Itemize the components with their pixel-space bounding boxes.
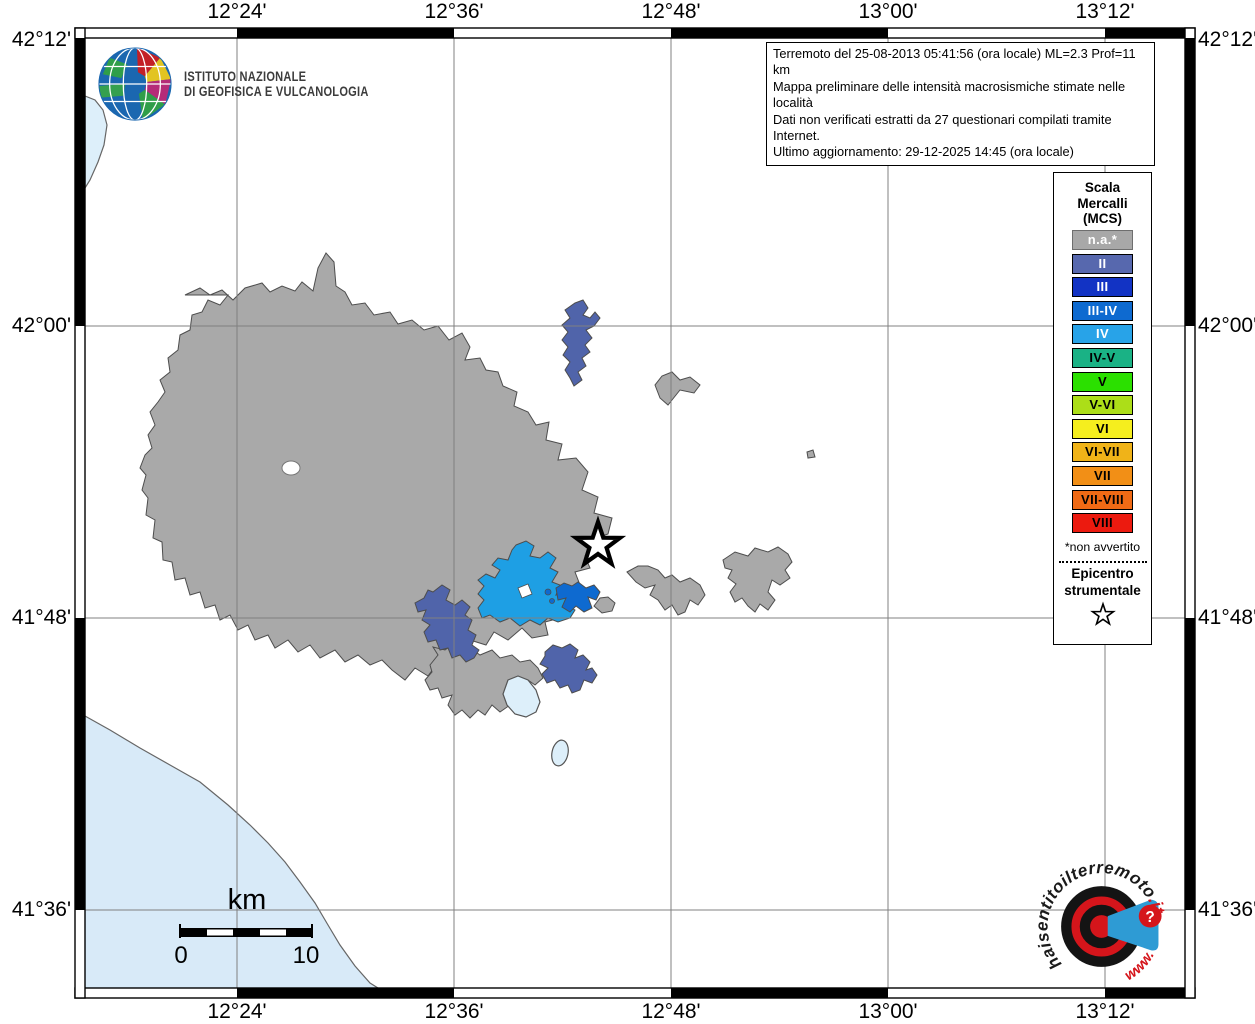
info-line-event: Terremoto del 25-08-2013 05:41:56 (ora l… <box>773 46 1148 79</box>
mercalli-legend: Scala Mercalli (MCS) n.a.* II III III-IV… <box>1053 172 1152 645</box>
axis-label-right: 42°00' <box>1198 314 1255 338</box>
legend-chip-iii: III <box>1072 277 1133 297</box>
ingv-logo: ISTITUTO NAZIONALE DI GEOFISICA E VULCAN… <box>96 45 409 123</box>
legend-divider <box>1059 561 1147 563</box>
info-line-data: Dati non verificati estratti da 27 quest… <box>773 112 1148 145</box>
legend-footnote: *non avvertito <box>1054 540 1151 554</box>
scalebar-start: 0 <box>174 942 187 970</box>
legend-title-line3: (MCS) <box>1054 211 1151 227</box>
legend-chip-iv-v: IV-V <box>1072 348 1133 368</box>
legend-title-line1: Scala <box>1054 180 1151 196</box>
axis-label-bottom: 13°12' <box>1075 1000 1134 1024</box>
legend-chip-iii-iv: III-IV <box>1072 301 1133 321</box>
municipality-intensity-ii <box>540 644 597 693</box>
earthquake-info-box: Terremoto del 25-08-2013 05:41:56 (ora l… <box>766 42 1155 166</box>
lake-martignano <box>282 461 300 475</box>
axis-label-top: 12°36' <box>424 0 483 24</box>
axis-label-top: 13°00' <box>858 0 917 24</box>
legend-chip-v-vi: V-VI <box>1072 395 1133 415</box>
municipality-intensity-iii-iv <box>545 589 551 595</box>
legend-chip-vi: VI <box>1072 419 1133 439</box>
info-line-updated: Ultimo aggiornamento: 29-12-2025 14:45 (… <box>773 144 1148 160</box>
ingv-globe-icon <box>96 45 174 123</box>
axis-label-top: 12°48' <box>641 0 700 24</box>
municipality-na <box>723 547 792 612</box>
legend-chip-vii-viii: VII-VIII <box>1072 490 1133 510</box>
municipality-na <box>627 566 705 615</box>
axis-label-top: 12°24' <box>207 0 266 24</box>
axis-label-top: 13°12' <box>1075 0 1134 24</box>
legend-epicenter-line2: strumentale <box>1054 583 1151 600</box>
municipality-intensity-iii-iv <box>550 599 555 604</box>
haisentitoilterremoto-logo: ? haisentitoilterremoto.it www. <box>1029 854 1174 999</box>
axis-label-bottom: 12°36' <box>424 1000 483 1024</box>
lake-nemi <box>549 739 570 768</box>
scalebar-end: 10 <box>293 942 320 970</box>
scalebar-unit: km <box>228 884 267 917</box>
legend-chip-vii: VII <box>1072 466 1133 486</box>
axis-label-bottom: 13°00' <box>858 1000 917 1024</box>
ingv-name-line2: DI GEOFISICA E VULCANOLOGIA <box>184 84 369 100</box>
axis-label-left: 42°12' <box>1 28 71 52</box>
municipality-intensity-iii-iv <box>556 582 600 612</box>
sea-area <box>85 716 378 988</box>
map-screenshot: 12°24' 12°36' 12°48' 13°00' 13°12' 12°24… <box>0 0 1255 1024</box>
legend-chip-ii: II <box>1072 254 1133 274</box>
legend-chip-viii: VIII <box>1072 513 1133 533</box>
legend-chip-iv: IV <box>1072 324 1133 344</box>
info-line-map: Mappa preliminare delle intensità macros… <box>773 79 1148 112</box>
ingv-name-line1: ISTITUTO NAZIONALE <box>184 69 369 85</box>
municipality-na <box>807 450 815 458</box>
legend-chip-v: V <box>1072 372 1133 392</box>
legend-star-icon <box>1089 601 1117 629</box>
axis-label-bottom: 12°48' <box>641 1000 700 1024</box>
axis-label-left: 41°48' <box>1 606 71 630</box>
axis-label-right: 41°36' <box>1198 898 1255 922</box>
municipality-na <box>655 372 700 405</box>
axis-label-right: 41°48' <box>1198 606 1255 630</box>
axis-label-bottom: 12°24' <box>207 1000 266 1024</box>
legend-chip-na: n.a.* <box>1072 230 1133 250</box>
axis-label-left: 42°00' <box>1 314 71 338</box>
municipality-intensity-ii <box>562 300 600 386</box>
legend-chip-vi-vii: VI-VII <box>1072 442 1133 462</box>
municipality-na <box>594 597 615 613</box>
legend-epicenter-line1: Epicentro <box>1054 566 1151 583</box>
axis-label-right: 42°12' <box>1198 28 1255 52</box>
axis-label-left: 41°36' <box>1 898 71 922</box>
legend-title-line2: Mercalli <box>1054 196 1151 212</box>
